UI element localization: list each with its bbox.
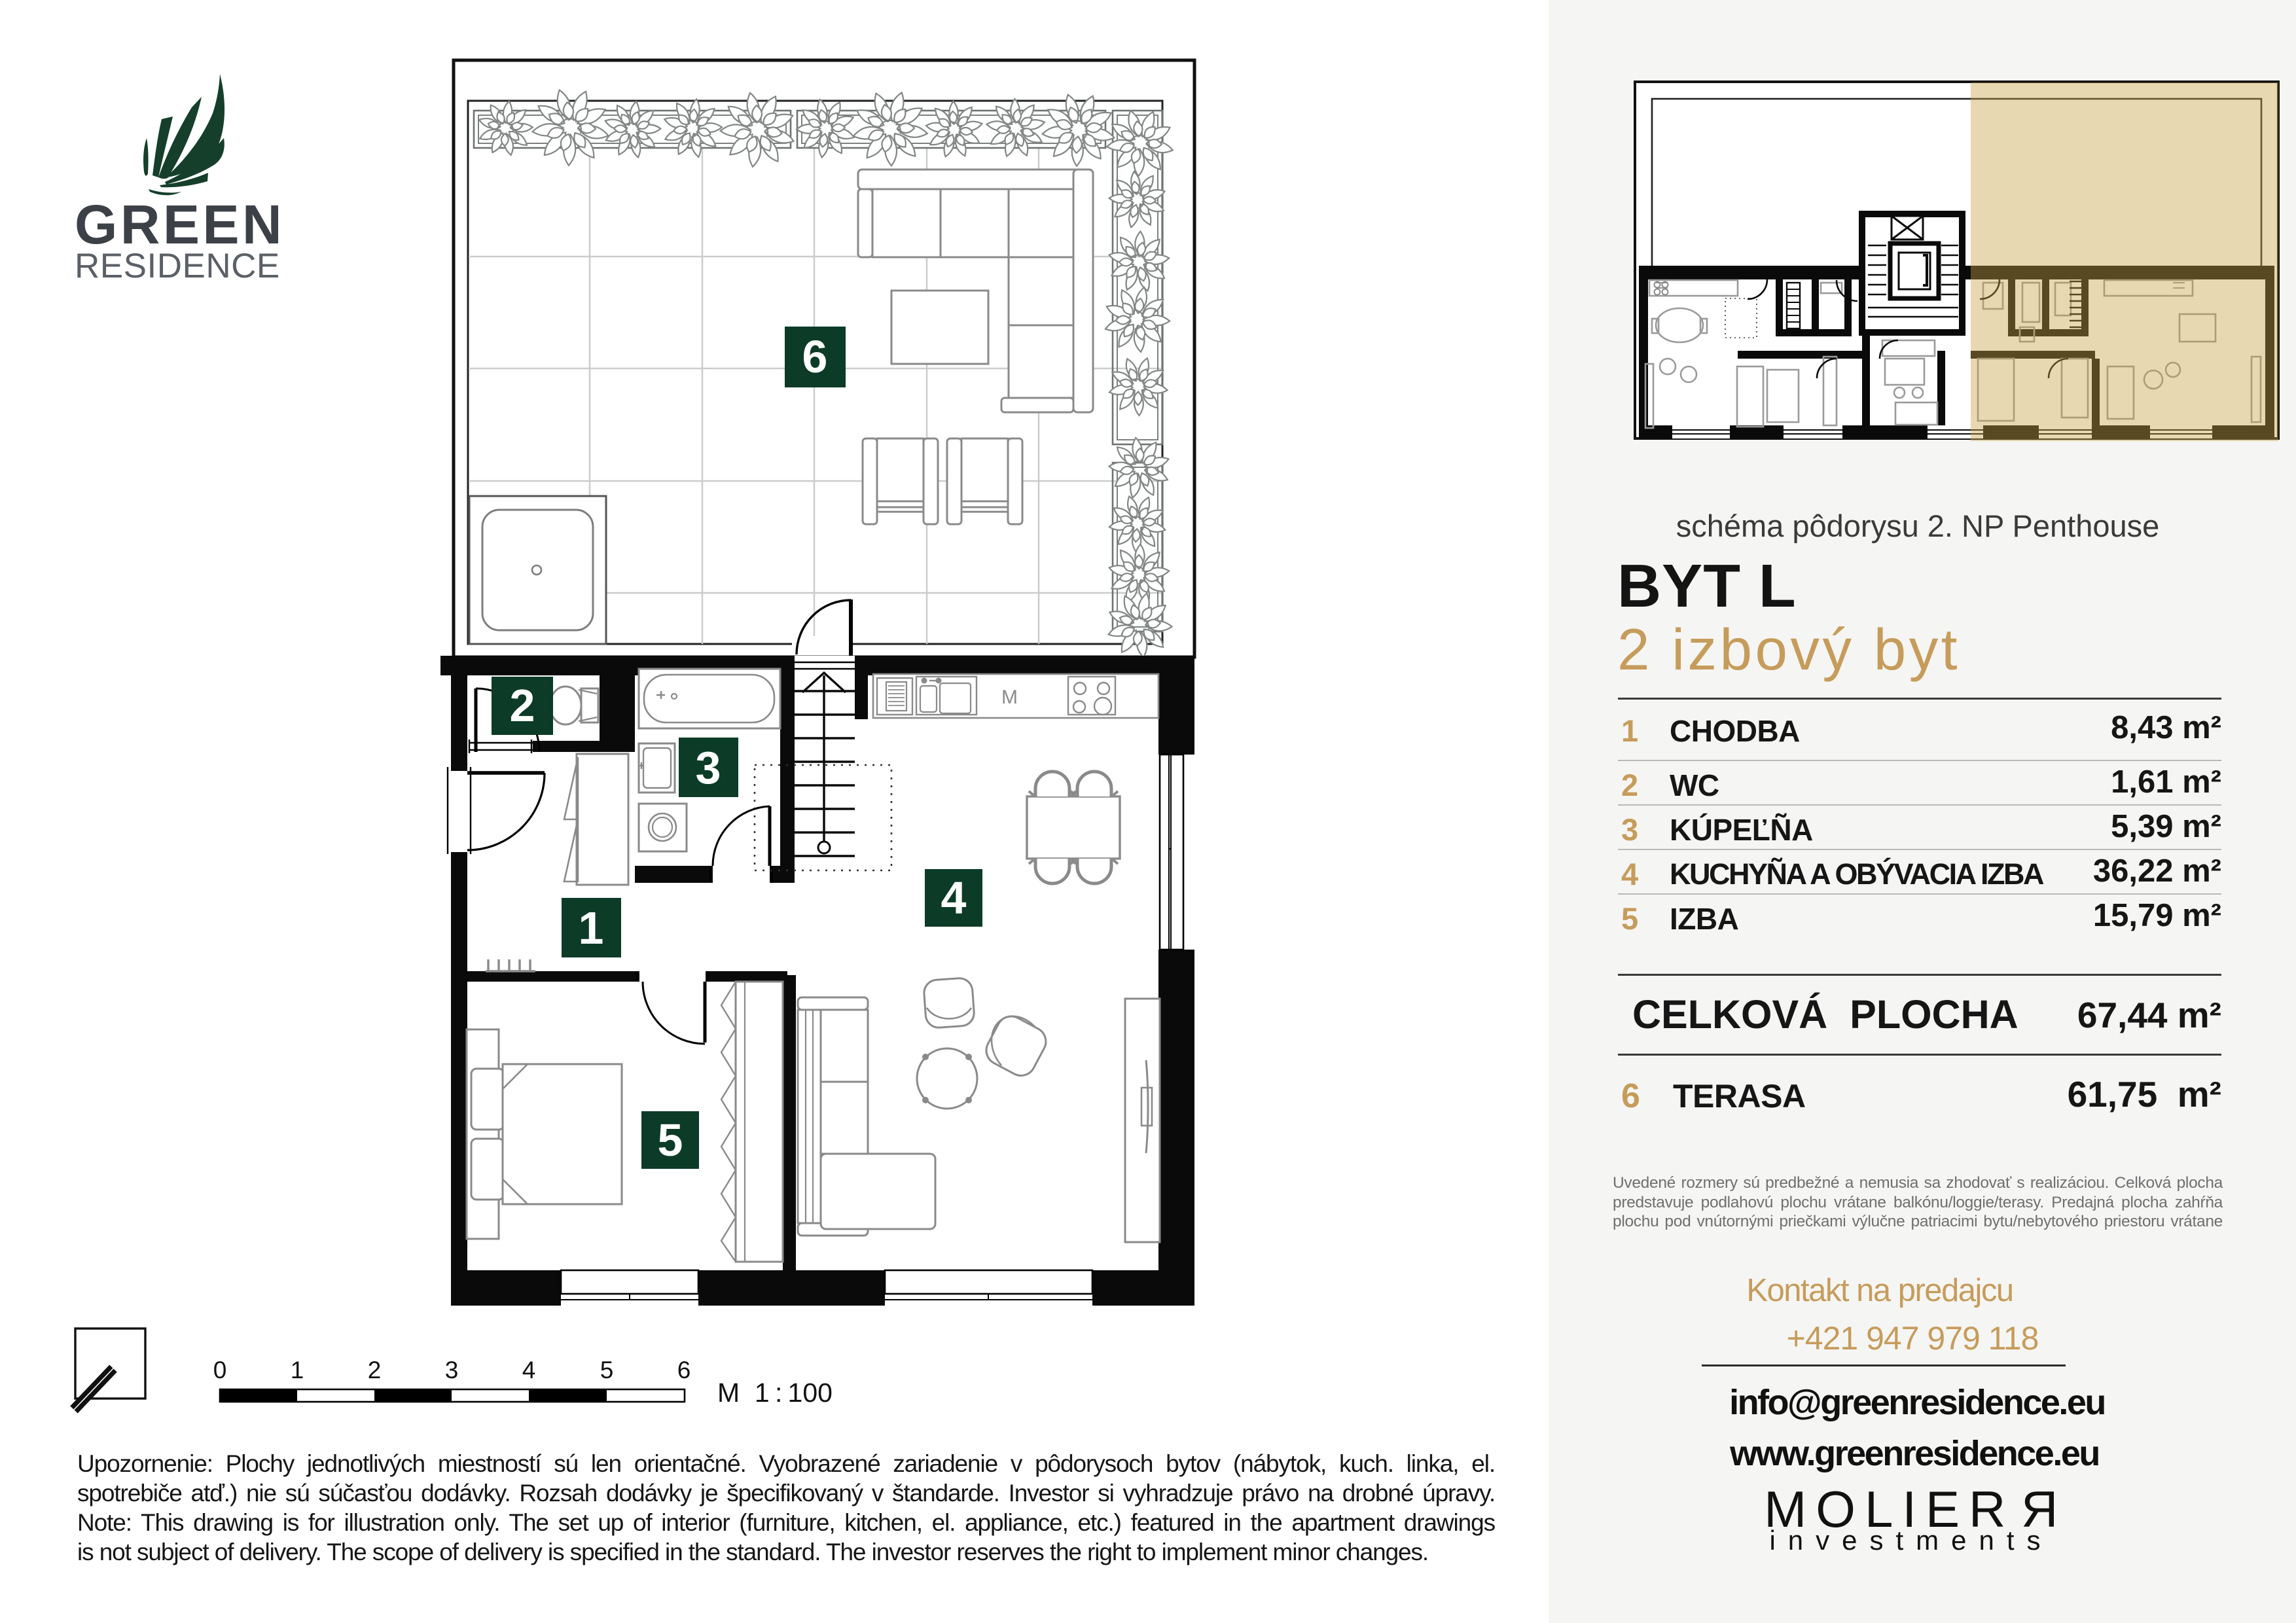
svg-text:M 1 : 100: M 1 : 100 <box>717 1378 833 1408</box>
svg-text:6: 6 <box>677 1357 691 1383</box>
svg-text:3: 3 <box>445 1357 459 1383</box>
svg-text:4: 4 <box>522 1357 536 1383</box>
svg-text:3: 3 <box>696 742 721 793</box>
svg-text:1: 1 <box>291 1357 304 1383</box>
svg-text:M: M <box>1001 687 1018 708</box>
svg-text:2: 2 <box>368 1357 382 1383</box>
svg-text:1: 1 <box>579 902 604 954</box>
svg-text:4: 4 <box>941 872 967 923</box>
svg-text:0: 0 <box>213 1357 227 1383</box>
svg-text:6: 6 <box>802 331 828 382</box>
svg-text:5: 5 <box>600 1357 614 1383</box>
svg-text:2: 2 <box>510 680 535 731</box>
svg-text:5: 5 <box>658 1115 683 1166</box>
